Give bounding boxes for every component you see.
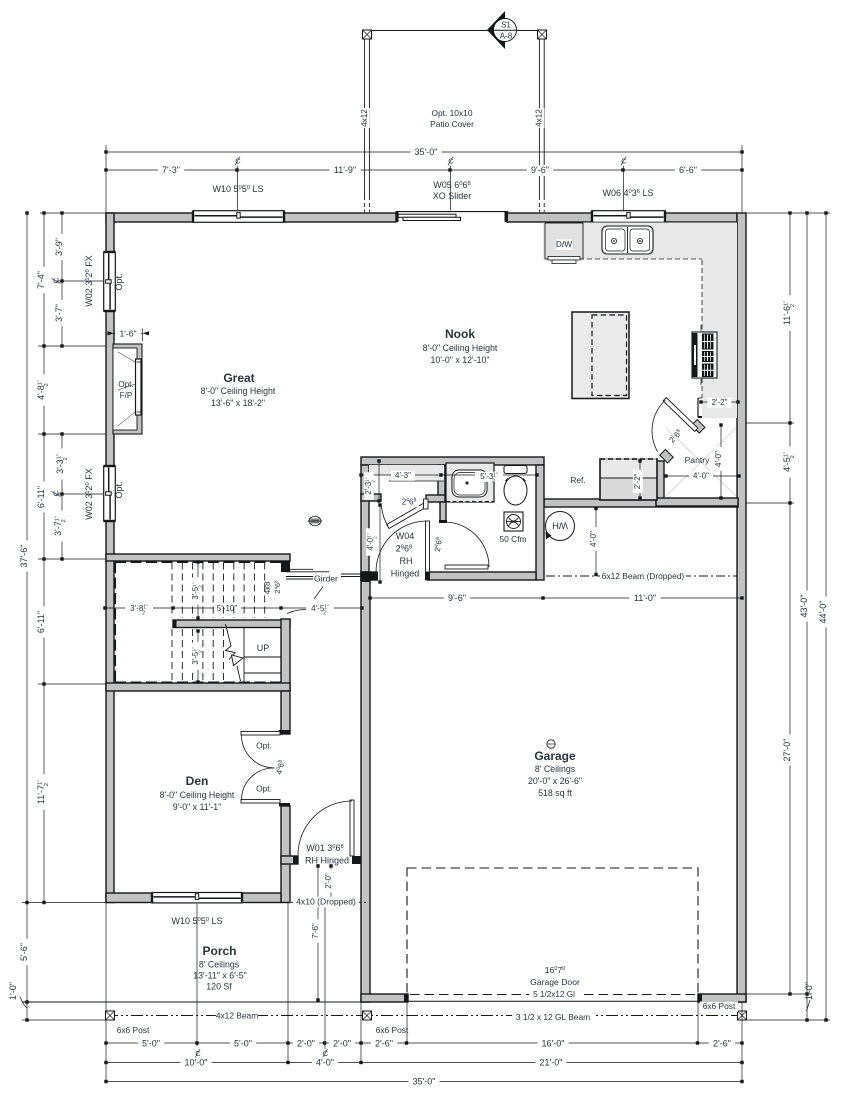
svg-text:WH: WH [552,520,568,531]
svg-text:20'-0" x 26'-6": 20'-0" x 26'-6" [528,776,582,786]
svg-text:1'-0": 1'-0" [8,982,18,1000]
svg-text:Girder: Girder [314,574,338,584]
svg-text:7'-6": 7'-6" [311,923,320,939]
svg-text:W02 3120 FX: W02 3120 FX [84,468,94,520]
svg-text:11'-9": 11'-9" [334,165,356,175]
svg-text:D/W: D/W [556,239,572,249]
svg-text:6'-11": 6'-11" [36,611,46,633]
svg-text:6x6 Post: 6x6 Post [703,1001,736,1011]
svg-text:6'-11": 6'-11" [36,486,46,508]
svg-text:27'-0": 27'-0" [782,739,792,762]
svg-text:XO Slider: XO Slider [433,191,472,201]
svg-text:6x6 Post: 6x6 Post [117,1025,150,1035]
svg-text:C: C [621,157,627,166]
svg-text:35'-0": 35'-0" [413,1077,436,1087]
svg-text:120 Sf: 120 Sf [206,982,232,992]
svg-text:Nook: Nook [445,327,475,341]
svg-text:4'-0": 4'-0" [589,531,598,547]
svg-text:5 1/2x12 Gl: 5 1/2x12 Gl [533,990,575,999]
svg-text:518 sq ft: 518 sq ft [538,788,572,798]
svg-text:W04: W04 [396,531,415,541]
svg-text:4x12 Beam: 4x12 Beam [216,1011,258,1021]
svg-text:9'-6": 9'-6" [531,165,549,175]
svg-text:Great: Great [223,371,254,385]
svg-text:4x10 (Dropped): 4x10 (Dropped) [296,897,356,907]
svg-text:4'-0": 4'-0" [316,1058,334,1068]
svg-text:13'-6" x 18'-2": 13'-6" x 18'-2" [211,398,265,408]
svg-text:C: C [52,277,61,283]
svg-text:2'-2": 2'-2" [633,474,642,490]
svg-text:C: C [448,157,454,166]
svg-text:C: C [235,157,241,166]
svg-text:37'-6": 37'-6" [19,545,29,568]
svg-text:Opt.: Opt. [118,380,133,389]
svg-text:RH Hinged: RH Hinged [305,856,349,866]
svg-text:S1: S1 [501,21,511,30]
svg-text:2'-6": 2'-6" [375,1039,393,1049]
svg-text:F/P: F/P [120,391,133,400]
svg-text:16'-0": 16'-0" [542,1039,565,1049]
svg-text:UP: UP [257,643,270,653]
svg-text:5'-10": 5'-10" [217,604,238,613]
svg-text:44'-0": 44'-0" [818,601,828,624]
svg-text:50 Cfm: 50 Cfm [500,534,527,544]
svg-text:4x12: 4x12 [360,109,369,127]
svg-text:W10 5050 LS: W10 5050 LS [212,184,263,194]
svg-text:Porch: Porch [202,944,236,958]
svg-text:43'-0": 43'-0" [799,595,809,618]
svg-text:W01 3068: W01 3068 [306,843,344,853]
svg-text:3 1/2 x 12 GL Beam: 3 1/2 x 12 GL Beam [516,1012,590,1022]
svg-text:7'-4": 7'-4" [36,271,46,289]
svg-text:35'-0": 35'-0" [415,147,438,157]
svg-text:1'-6": 1'-6" [119,329,136,339]
svg-text:8'-0" Ceiling Height: 8'-0" Ceiling Height [201,386,276,396]
svg-text:2'-6": 2'-6" [713,1039,731,1049]
svg-text:6x12 Beam (Dropped): 6x12 Beam (Dropped) [602,571,685,581]
svg-text:10'-0" x 12'-10": 10'-0" x 12'-10" [431,355,490,365]
svg-text:Ref.: Ref. [570,475,585,485]
svg-text:5'-0": 5'-0" [142,1039,160,1049]
svg-text:A-8: A-8 [500,32,513,41]
svg-text:Opt. 10x10: Opt. 10x10 [432,108,473,118]
svg-text:5'-6": 5'-6" [19,943,29,961]
svg-text:6'-6": 6'-6" [679,165,697,175]
svg-text:1'-0": 1'-0" [804,982,814,1000]
svg-text:3'-7": 3'-7" [54,304,64,322]
svg-text:2'-2": 2'-2" [712,398,728,407]
svg-text:Garage: Garage [534,749,576,763]
svg-text:2'-0": 2'-0" [333,1039,351,1049]
svg-text:W05 6068: W05 6068 [433,180,471,190]
svg-text:Den: Den [186,774,209,788]
svg-text:9'-6": 9'-6" [448,593,466,603]
svg-text:2'-0": 2'-0" [324,873,333,889]
svg-text:2'-0": 2'-0" [297,1039,315,1049]
svg-text:4'-0": 4'-0" [714,451,723,467]
svg-text:10'-0": 10'-0" [185,1058,208,1068]
svg-text:Opt.: Opt. [256,784,272,794]
svg-text:8' Ceilings: 8' Ceilings [199,960,240,970]
svg-text:7'-3": 7'-3" [162,165,180,175]
svg-text:8'-0" Ceiling Height: 8'-0" Ceiling Height [423,343,498,353]
svg-text:Opt.: Opt. [256,741,272,751]
svg-text:C: C [52,490,61,496]
svg-text:4'-3": 4'-3" [395,471,411,480]
svg-text:13'-11" x 6'-5": 13'-11" x 6'-5" [193,971,246,981]
svg-text:21'-0": 21'-0" [540,1058,563,1068]
svg-text:4'-0": 4'-0" [693,472,709,481]
svg-text:11'-0": 11'-0" [634,593,656,603]
svg-text:4x8: 4x8 [263,582,272,595]
svg-text:Hinged: Hinged [391,569,420,579]
svg-text:9'-0" x 11'-1": 9'-0" x 11'-1" [173,802,222,812]
svg-text:8'-0" Ceiling Height: 8'-0" Ceiling Height [160,790,235,800]
svg-text:6x6 Post: 6x6 Post [376,1025,409,1035]
svg-text:4x12: 4x12 [535,109,544,127]
svg-text:5'-0": 5'-0" [234,1039,252,1049]
svg-text:3'-9": 3'-9" [54,238,64,256]
svg-text:W06 4036 LS: W06 4036 LS [602,188,653,198]
svg-text:Pantry: Pantry [685,455,711,465]
svg-text:W02 3120 FX: W02 3120 FX [84,255,94,307]
svg-text:8' Ceilings: 8' Ceilings [535,764,576,774]
svg-text:Garage Door: Garage Door [530,977,580,987]
svg-text:Patio Cover: Patio Cover [430,119,474,129]
svg-text:RH: RH [400,556,413,566]
